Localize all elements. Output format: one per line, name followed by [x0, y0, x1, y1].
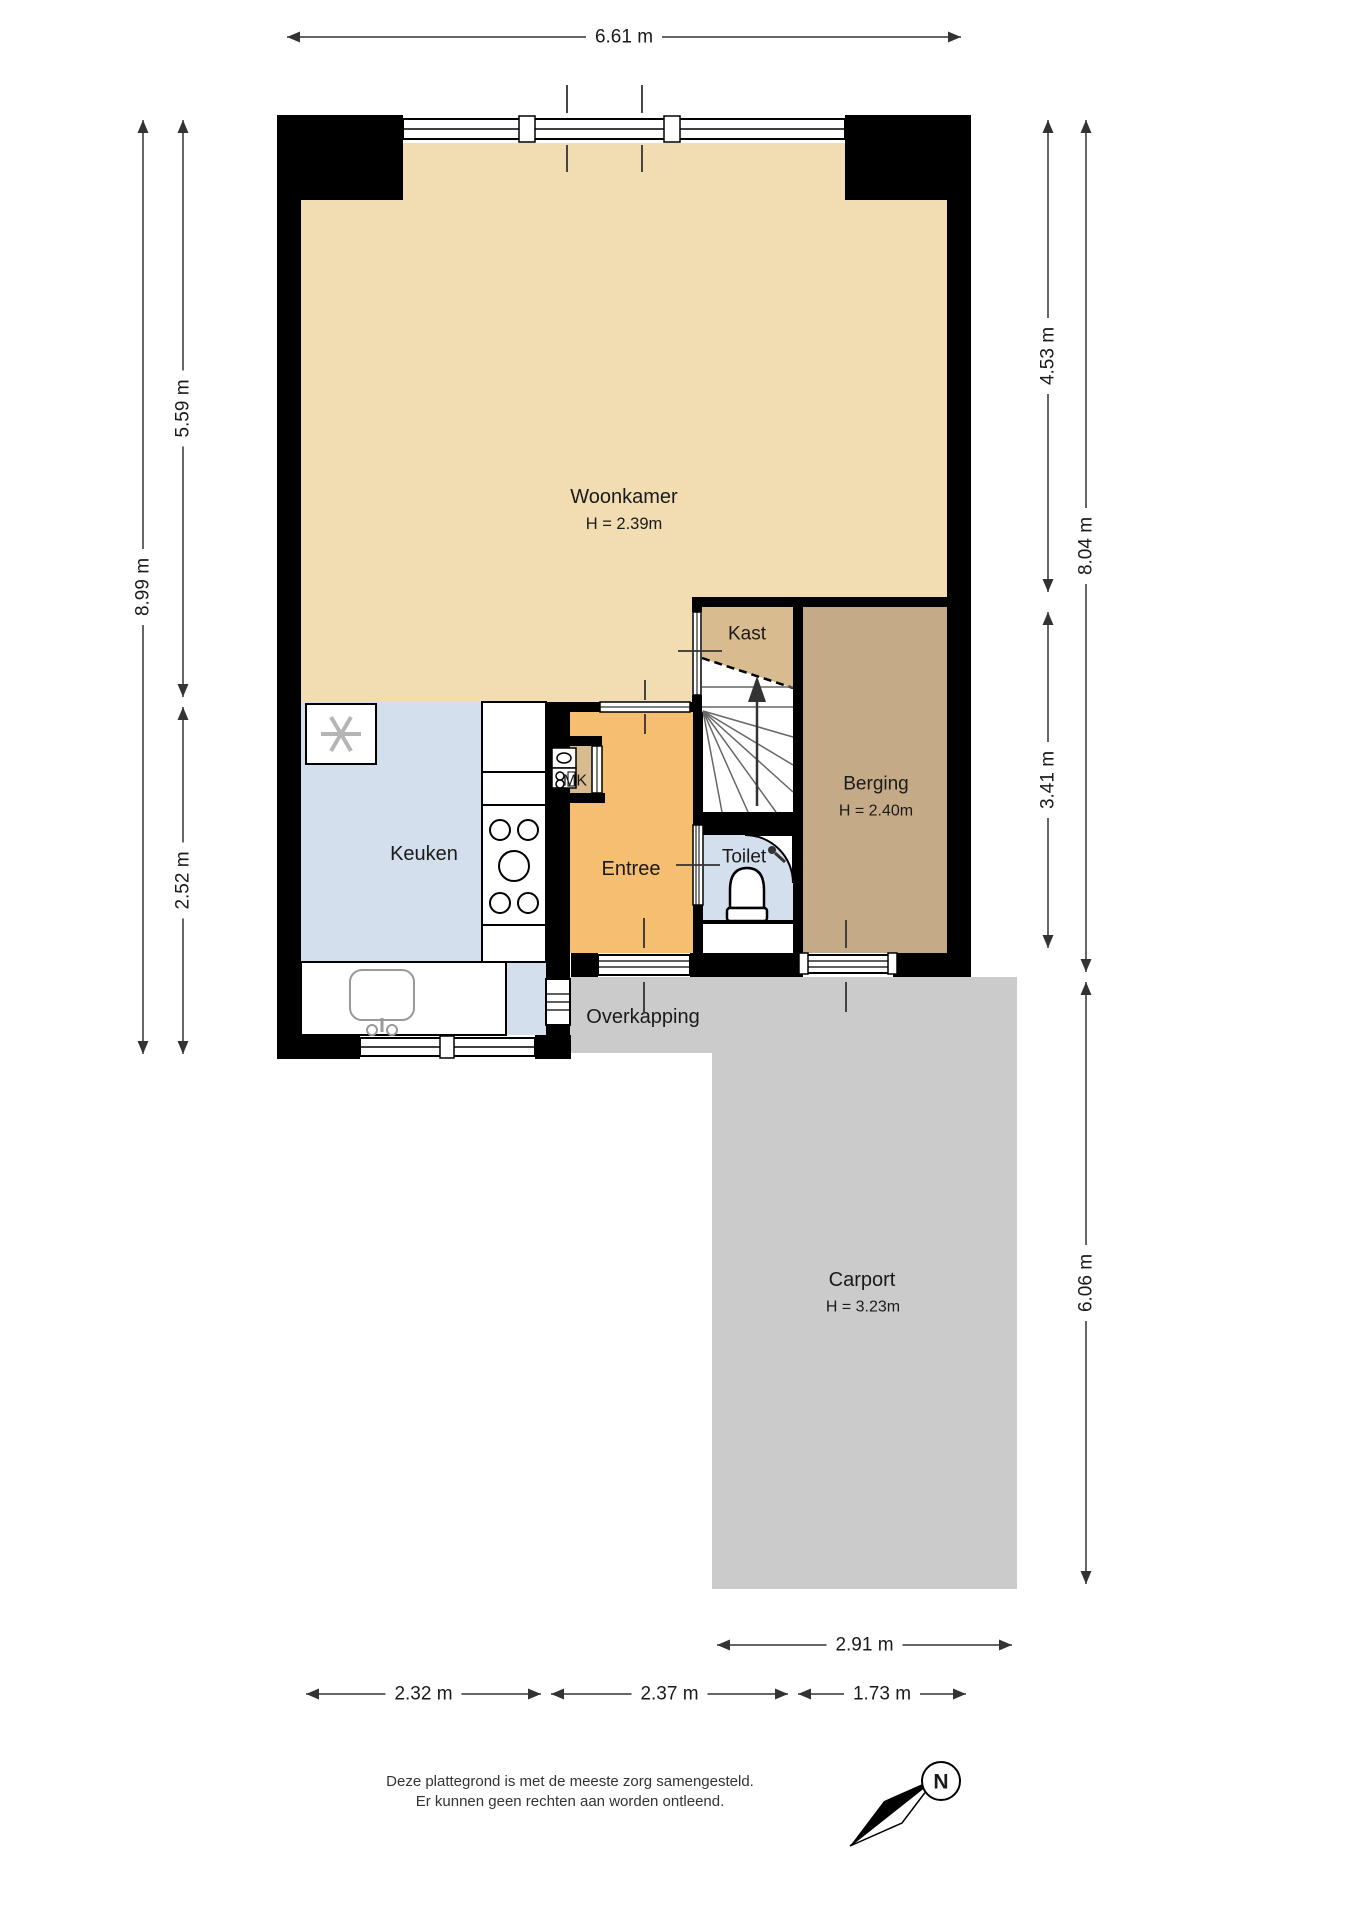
dim-label: 5.59 m [173, 379, 194, 437]
stove-burner [490, 820, 510, 840]
dim-label: 3.41 m [1038, 751, 1059, 809]
dim-label: 6.06 m [1076, 1254, 1097, 1312]
door-berging [803, 955, 893, 973]
dim-label: 2.52 m [173, 851, 194, 909]
dimension-6-06-m: 6.06 m [1076, 982, 1097, 1584]
dim-label: 2.32 m [394, 1684, 452, 1705]
dimension-4-53-m: 4.53 m [1038, 120, 1059, 592]
dimension-5-59-m: 5.59 m [173, 120, 194, 697]
stair-winder [703, 711, 793, 765]
wall-berging-west [793, 607, 803, 953]
wall-bottom-entree-b [690, 953, 803, 977]
stove-burner [490, 893, 510, 913]
dim-label: 8.99 m [133, 558, 154, 616]
dim-label: 1.73 m [853, 1684, 911, 1705]
toilet-basin-tap [768, 846, 776, 854]
stair-direction-arrow-head [748, 676, 766, 702]
label-carport-height: H = 3.23m [826, 1299, 900, 1316]
polygon [775, 1689, 788, 1700]
door-berging-cap-left [799, 953, 808, 974]
label-woonkamer-height: H = 2.39m [586, 515, 663, 533]
wall-mk-top [566, 736, 602, 746]
floorplan-page: 6.61 m8.99 m5.59 m2.52 m4.53 m3.41 m8.04… [0, 0, 1358, 1920]
polygon [178, 120, 189, 133]
polygon [551, 1689, 564, 1700]
polygon [1043, 935, 1054, 948]
floorplan-svg: 6.61 m8.99 m5.59 m2.52 m4.53 m3.41 m8.04… [0, 0, 1358, 1920]
wall-stairs-toilet [702, 812, 793, 835]
label-berging-height: H = 2.40m [839, 803, 913, 820]
polygon [138, 120, 149, 133]
wall-toilet-west-a [693, 712, 703, 825]
wall-mk-bottom [566, 793, 605, 803]
label-kast: Kast [728, 624, 767, 645]
polygon [1081, 982, 1092, 995]
disclaimer-line1: Deze plattegrond is met de meeste zorg s… [0, 1772, 1140, 1792]
dim-label: 2.91 m [835, 1635, 893, 1656]
dim-label: 2.37 m [640, 1684, 698, 1705]
polygon [798, 1689, 811, 1700]
polygon [1081, 1571, 1092, 1584]
wall-toilet-west-b [693, 905, 703, 953]
dimension-8-04-m: 8.04 m [1076, 120, 1097, 972]
polygon [1081, 120, 1092, 133]
wall-bottom-kitchen-a [277, 1035, 360, 1059]
label-mk: MK [563, 773, 587, 790]
dim-label: 8.04 m [1076, 517, 1097, 575]
disclaimer: Deze plattegrond is met de meeste zorg s… [0, 1772, 1140, 1812]
window-mullion-1 [519, 116, 535, 142]
door-berging-cap-right [888, 953, 897, 974]
polygon [178, 1041, 189, 1054]
toilet-bowl [730, 868, 764, 908]
wall-bottom-entree-a [571, 953, 598, 977]
label-entree: Entree [602, 858, 661, 880]
stair-winder [703, 711, 776, 812]
dimension-2-52-m: 2.52 m [173, 707, 194, 1054]
door-entree-front [598, 955, 690, 975]
label-keuken: Keuken [390, 843, 458, 865]
polygon [999, 1640, 1012, 1651]
polygon [1043, 120, 1054, 133]
stove-burner [499, 851, 529, 881]
stove-burner [518, 893, 538, 913]
wall-berging-top [692, 597, 947, 607]
dimension-2-32-m: 2.32 m [306, 1684, 541, 1705]
window-keuken-mullion [440, 1036, 454, 1058]
window-mullion-2 [664, 116, 680, 142]
dimension-6-61-m: 6.61 m [287, 27, 961, 48]
polygon [717, 1640, 730, 1651]
polygon [948, 32, 961, 43]
polygon [953, 1689, 966, 1700]
dimension-1-73-m: 1.73 m [798, 1684, 966, 1705]
wall-keuken-east-lower [546, 1025, 570, 1059]
wall-right [947, 115, 971, 977]
wall-entree-top-a [546, 702, 600, 712]
dim-label: 6.61 m [595, 27, 653, 48]
room-kast [702, 607, 793, 688]
stair-winder [703, 711, 748, 812]
area-overkapping-carport [570, 977, 1017, 1589]
disclaimer-line2: Er kunnen geen rechten aan worden ontlee… [0, 1792, 1140, 1812]
meter-dial [557, 753, 571, 763]
polygon [1043, 579, 1054, 592]
dimension-2-37-m: 2.37 m [551, 1684, 788, 1705]
wall-left [277, 115, 301, 1059]
polygon [138, 1041, 149, 1054]
label-carport: Carport [829, 1269, 896, 1291]
polygon [1043, 612, 1054, 625]
label-woonkamer: Woonkamer [570, 486, 678, 508]
dim-label: 4.53 m [1038, 327, 1059, 385]
label-toilet: Toilet [722, 847, 767, 868]
sink-tap-knob [387, 1025, 397, 1035]
polygon [287, 32, 300, 43]
polygon [178, 684, 189, 697]
wall-bottom-berging [893, 953, 971, 977]
label-overkapping: Overkapping [586, 1006, 699, 1028]
dimension-2-91-m: 2.91 m [717, 1635, 1012, 1656]
polygon [528, 1689, 541, 1700]
sink-tap-knob [367, 1025, 377, 1035]
dimension-8-99-m: 8.99 m [133, 120, 154, 1054]
polygon [178, 707, 189, 720]
polygon [306, 1689, 319, 1700]
sink-basin [350, 970, 414, 1020]
toilet-tank [727, 908, 767, 921]
label-berging: Berging [843, 774, 909, 795]
dimension-3-41-m: 3.41 m [1038, 612, 1059, 948]
wall-kast-west-b [692, 695, 702, 712]
stove-burner [518, 820, 538, 840]
polygon [1081, 959, 1092, 972]
